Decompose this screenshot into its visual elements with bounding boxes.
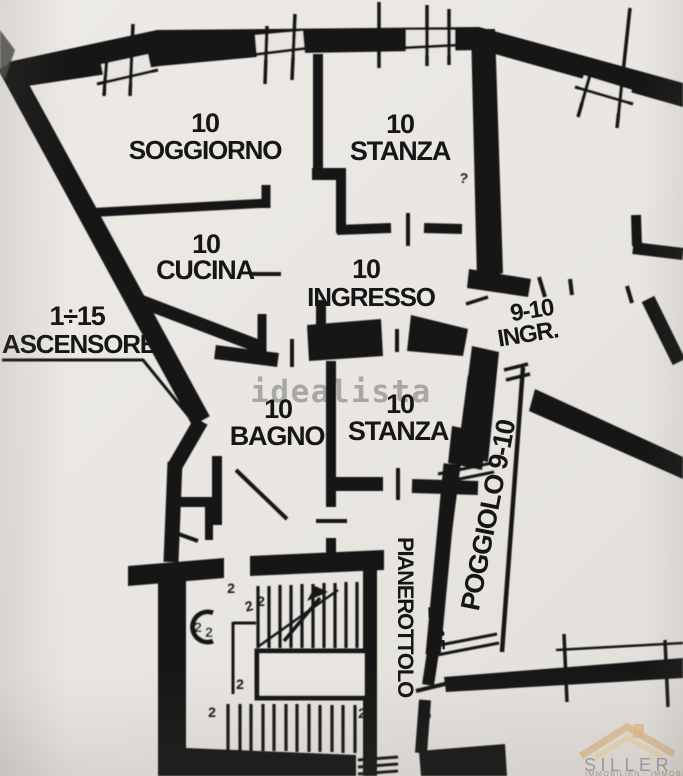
- label-ingresso: INGRESSO: [307, 282, 436, 312]
- stair-landing: [257, 651, 367, 698]
- wall-stanza-south: [337, 228, 391, 230]
- wall-ingresso-south: [407, 315, 468, 356]
- wall-left-lower: [171, 462, 175, 562]
- wall-right-unit-diagonal: [648, 299, 679, 362]
- label-ascensore-range: 1÷15: [49, 301, 105, 331]
- door-swing-icon: 2: [243, 597, 255, 614]
- poggiolo-edge-line: [502, 367, 523, 652]
- label-stanza-top: STANZA: [350, 136, 451, 166]
- wall-stair-bottom: [186, 748, 356, 776]
- label-soggiorno: SOGGIORNO: [129, 135, 282, 165]
- label-stanza-mid: STANZA: [348, 416, 449, 446]
- window-icon: [251, 14, 309, 84]
- window-tick: [564, 634, 567, 702]
- floorplan-photo: idealista SILLER IMMOBILIEN - IMMOBILI: [0, 0, 683, 776]
- wall-soggiorno-cucina: [84, 203, 269, 213]
- wall-corridor-right: [421, 700, 425, 753]
- door-swing-icon: 2: [208, 704, 216, 720]
- wall-block: [448, 426, 487, 470]
- wall-stanza-south: [424, 228, 462, 229]
- label-ascensore: ASCENSORE: [2, 329, 157, 359]
- wall-right-unit-band: [529, 389, 683, 479]
- label-stanza-top-number: 10: [386, 109, 414, 139]
- label-bagno: BAGNO: [230, 421, 325, 451]
- wall-bottom-right-band: [444, 658, 683, 692]
- door-swing-icon: 2: [417, 711, 434, 722]
- label-soggiorno-number: 10: [191, 108, 219, 138]
- siller-logo: SILLER IMMOBILIEN - IMMOBILI: [581, 724, 683, 776]
- window-tick: [665, 640, 668, 707]
- door-swing-icon: 2: [236, 676, 244, 692]
- floorplan-drawing: idealista SILLER IMMOBILIEN - IMMOBILI: [0, 0, 683, 776]
- label-cucina: CUCINA: [156, 255, 254, 285]
- wall-bottom-mass: [419, 744, 507, 776]
- label-ingr-910: INGR.: [496, 316, 561, 352]
- stair-cut-line: [259, 590, 338, 646]
- door-hinge-mark: [476, 156, 478, 178]
- siller-logo-tagline: IMMOBILIEN - IMMOBILI: [585, 769, 683, 776]
- wall-ingresso-south: [215, 352, 278, 360]
- wall-right-unit: [636, 215, 637, 246]
- door-swing-icon: 2: [205, 624, 213, 640]
- door-leaf-mark: [466, 297, 488, 304]
- label-stanza-mid-number: 10: [386, 389, 414, 419]
- wall-right-unit: [633, 248, 683, 254]
- door-leaf-diagonal: [236, 470, 287, 519]
- door-dash: [506, 374, 530, 380]
- label-pianerottolo: PIANEROTTOLO: [393, 537, 418, 698]
- logo-roof-icon: [581, 727, 674, 756]
- wall-stanza-mid-south: [412, 486, 478, 488]
- staircase-lower-flight: [228, 704, 366, 753]
- door-leaf-mark: [627, 286, 632, 303]
- door-swing-icon: 2: [227, 580, 235, 596]
- door-swing-icon: 2: [194, 619, 202, 635]
- wall-stair-left: [158, 562, 186, 776]
- wall-left-diagonal: [7, 65, 201, 421]
- wall-central: [471, 29, 503, 281]
- label-stairs-range: 1÷15: [423, 605, 450, 651]
- label-bagno-number: 10: [264, 394, 292, 424]
- door-hinge-icon: ?: [459, 169, 470, 186]
- door-swing-icon: 2: [363, 725, 371, 741]
- wall-stair-top: [128, 558, 224, 586]
- wall-left-corner: [175, 421, 201, 466]
- wall-corridor-right: [428, 652, 433, 685]
- door-swing-icon: 2: [358, 705, 366, 721]
- door-leaf-mark: [570, 279, 572, 295]
- door-swing-icon: 2: [257, 593, 265, 609]
- label-ingresso-number: 10: [352, 254, 380, 284]
